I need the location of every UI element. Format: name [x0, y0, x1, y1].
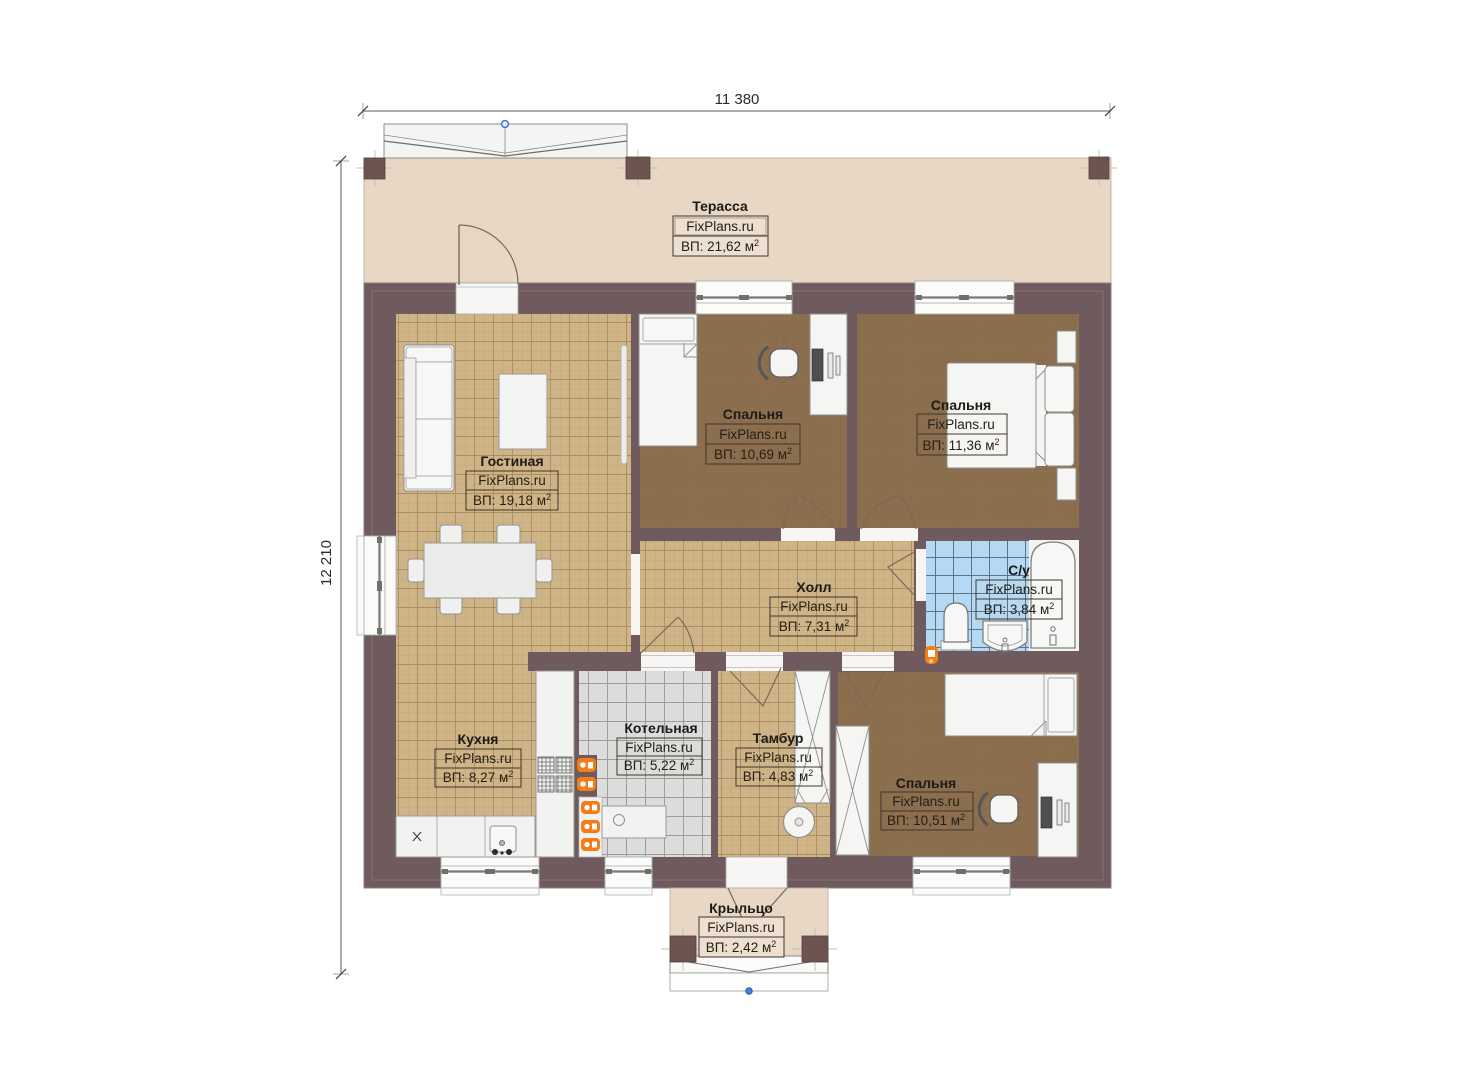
svg-text:FixPlans.ru: FixPlans.ru [780, 599, 848, 614]
svg-text:ВП: 11,36 м2: ВП: 11,36 м2 [922, 437, 999, 453]
svg-text:FixPlans.ru: FixPlans.ru [719, 427, 787, 442]
svg-text:12 210: 12 210 [318, 540, 335, 586]
svg-text:FixPlans.ru: FixPlans.ru [927, 417, 995, 432]
svg-text:FixPlans.ru: FixPlans.ru [892, 794, 960, 809]
svg-text:Холл: Холл [796, 579, 831, 595]
svg-text:FixPlans.ru: FixPlans.ru [625, 740, 693, 755]
svg-text:ВП: 2,42 м2: ВП: 2,42 м2 [706, 939, 777, 955]
svg-text:Гостиная: Гостиная [480, 453, 543, 469]
svg-text:ВП: 10,69 м2: ВП: 10,69 м2 [714, 446, 792, 462]
svg-text:Котельная: Котельная [624, 720, 697, 736]
svg-text:FixPlans.ru: FixPlans.ru [478, 473, 546, 488]
svg-text:Спальня: Спальня [931, 397, 991, 413]
svg-text:ВП: 4,83 м2: ВП: 4,83 м2 [743, 768, 814, 784]
svg-text:ВП: 21,62 м2: ВП: 21,62 м2 [681, 238, 759, 254]
svg-text:ВП: 3,84 м2: ВП: 3,84 м2 [984, 601, 1055, 617]
svg-text:Спальня: Спальня [896, 775, 956, 791]
svg-text:Спальня: Спальня [723, 406, 783, 422]
svg-text:FixPlans.ru: FixPlans.ru [707, 920, 775, 935]
svg-text:С/у: С/у [1008, 562, 1030, 578]
svg-text:Терасса: Терасса [692, 198, 748, 214]
svg-text:FixPlans.ru: FixPlans.ru [444, 751, 512, 766]
svg-text:FixPlans.ru: FixPlans.ru [744, 750, 812, 765]
svg-text:FixPlans.ru: FixPlans.ru [686, 219, 754, 234]
svg-text:ВП: 10,51 м2: ВП: 10,51 м2 [887, 812, 965, 828]
svg-text:Тамбур: Тамбур [753, 730, 804, 746]
svg-text:ВП: 8,27 м2: ВП: 8,27 м2 [443, 769, 514, 785]
svg-text:FixPlans.ru: FixPlans.ru [985, 582, 1053, 597]
svg-text:ВП: 5,22 м2: ВП: 5,22 м2 [624, 757, 695, 773]
svg-text:Кухня: Кухня [458, 731, 499, 747]
svg-text:ВП: 19,18 м2: ВП: 19,18 м2 [473, 492, 551, 508]
svg-text:Крыльцо: Крыльцо [709, 900, 773, 916]
svg-text:ВП: 7,31 м2: ВП: 7,31 м2 [779, 618, 850, 634]
svg-text:11 380: 11 380 [715, 91, 760, 108]
